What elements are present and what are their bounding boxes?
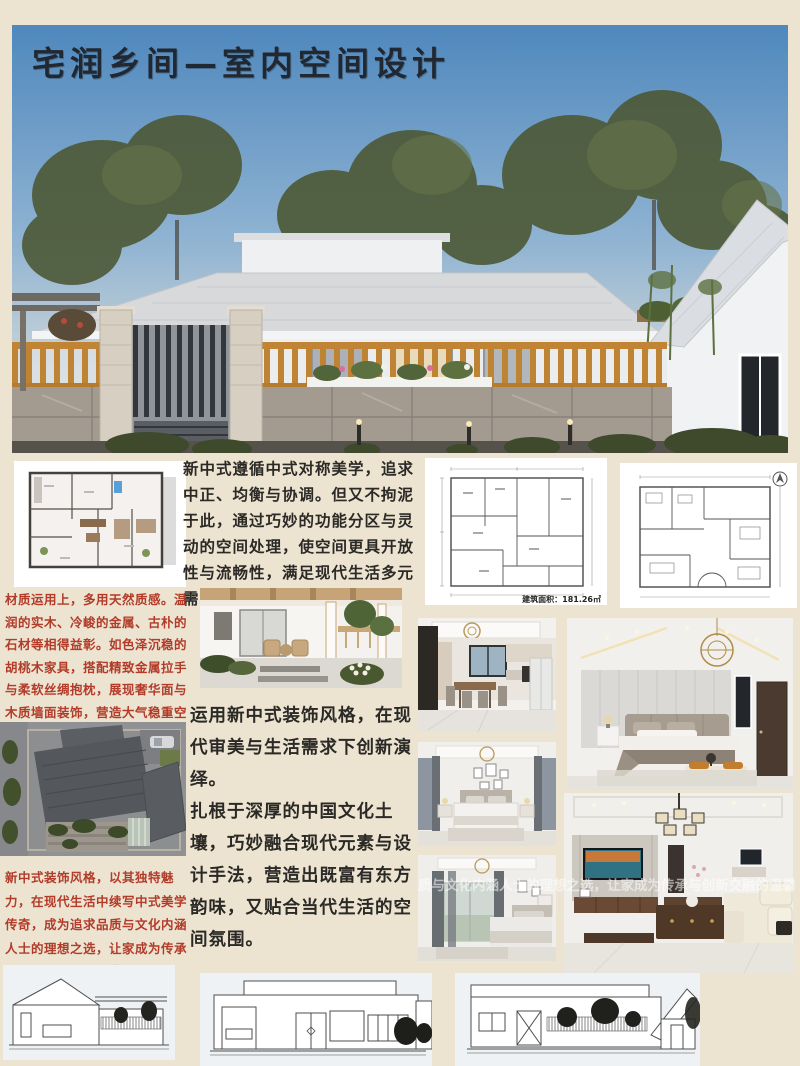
cad-floor-plan-2 — [620, 463, 797, 608]
poster-title: 宅润乡间—室内空间设计 — [32, 37, 450, 85]
master-bedroom-render — [567, 618, 793, 790]
bedroom-window — [735, 676, 751, 728]
style-paragraph-2: 扎根于深厚的中国文化土壤，巧妙融合现代元素与设计手法，营造出既富有东方韵味，又贴… — [190, 796, 418, 956]
design-poster: 宅润乡间—室内空间设计 新中式遵循中式对称美学，追求中正、均衡与协调。但又不拘泥… — [0, 0, 800, 1066]
main-roof-aerial — [34, 736, 152, 826]
cad-floor-plan-1: 建筑面积：181.26㎡ — [425, 458, 607, 605]
gate-pillar-left — [100, 310, 132, 445]
hero-render-graphic — [12, 25, 788, 453]
style-paragraph-1: 运用新中式装饰风格，在现代审美与生活需求下创新演绎。 — [190, 700, 418, 796]
style-paragraphs: 运用新中式装饰风格，在现代审美与生活需求下创新演绎。 扎根于深厚的中国文化土壤，… — [190, 700, 418, 956]
elevation-drawing-1 — [3, 965, 175, 1060]
tv-console — [574, 897, 658, 913]
color-floor-plan — [14, 461, 186, 587]
aerial-view-render — [0, 722, 186, 856]
gate-pillar-right — [230, 310, 262, 445]
hero-exterior-render: 宅润乡间—室内空间设计 — [12, 25, 788, 453]
bedroom2-render — [418, 742, 556, 846]
kitchen-render — [418, 618, 556, 732]
bedroom3-render — [418, 855, 556, 961]
porch-render — [200, 588, 402, 688]
elevation-drawing-2 — [200, 973, 432, 1066]
area-label: 建筑面积：181.26㎡ — [521, 594, 601, 604]
living-room-render — [564, 793, 793, 973]
elevation-drawing-3 — [455, 973, 700, 1066]
dining-table — [454, 682, 496, 690]
